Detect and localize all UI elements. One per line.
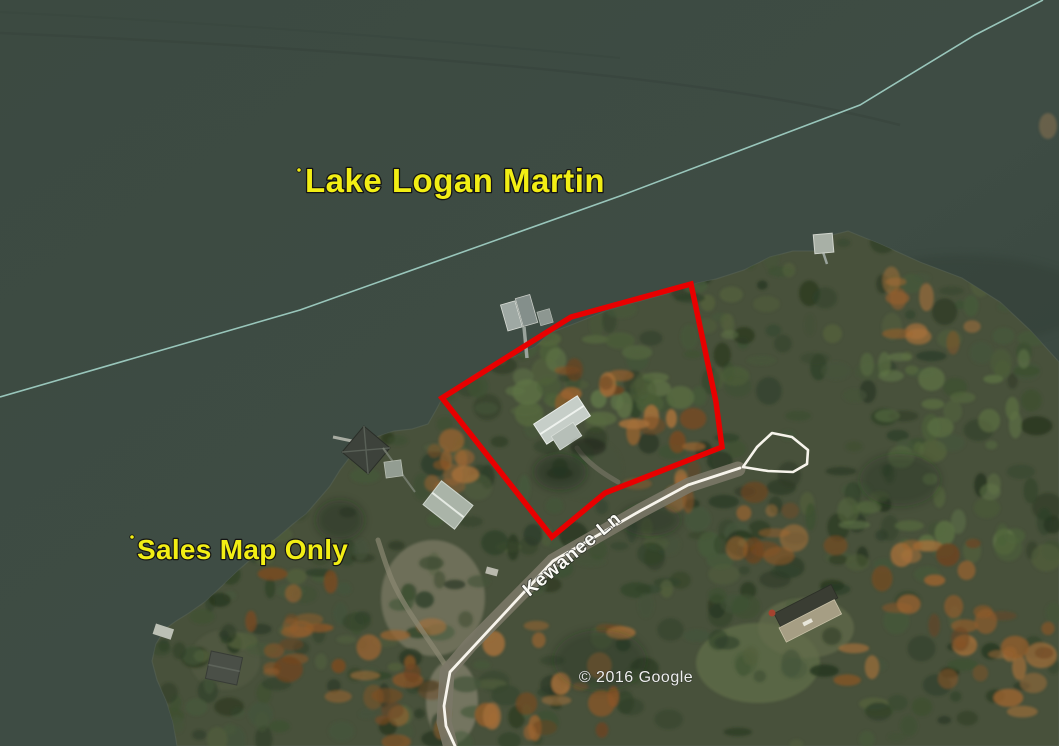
- aerial-map-image: Lake Logan Martin Sales Map Only Kewanee…: [0, 0, 1059, 746]
- lake-name-label: Lake Logan Martin: [305, 162, 605, 199]
- label-tick: [297, 168, 301, 172]
- label-tick: [130, 535, 134, 539]
- attribution-label: © 2016 Google: [579, 669, 693, 686]
- parked-car: [769, 610, 776, 617]
- sales-map: Lake Logan Martin Sales Map Only Kewanee…: [0, 0, 1059, 746]
- floating-object: [1039, 113, 1057, 139]
- shed-roof: [384, 460, 403, 478]
- bottom-left-house-roof: [205, 651, 242, 685]
- watermark-label: Sales Map Only: [137, 534, 348, 565]
